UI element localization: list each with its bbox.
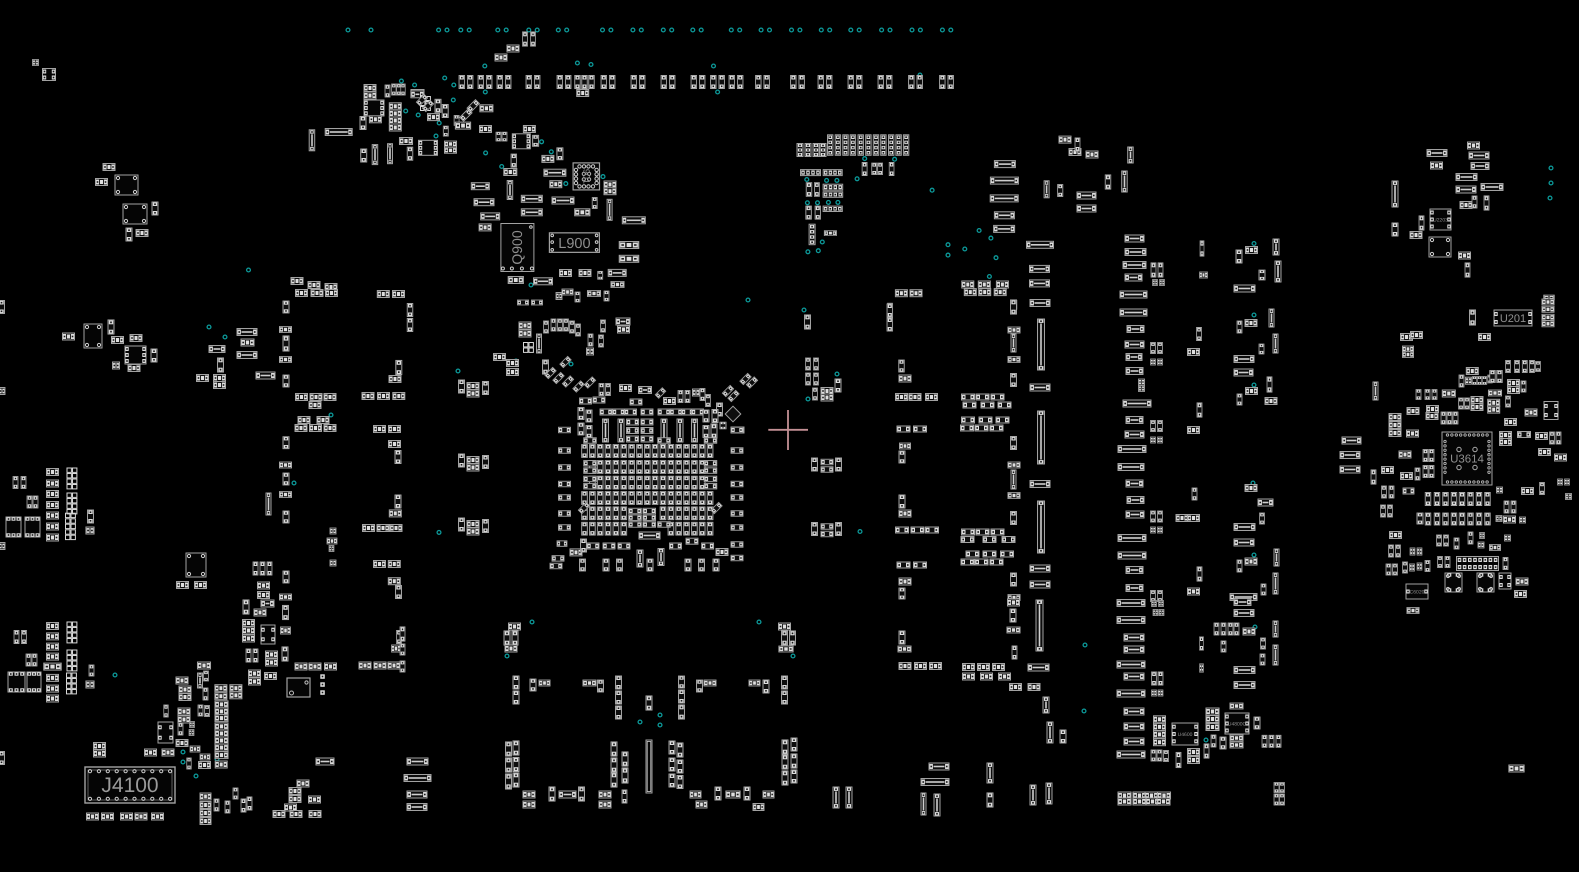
svg-text:U201: U201 [1500, 313, 1526, 325]
svg-text:L900: L900 [558, 236, 590, 252]
svg-text:U4800C: U4800C [1228, 721, 1247, 727]
svg-text:Q900: Q900 [509, 230, 525, 264]
svg-text:U4600: U4600 [1178, 732, 1193, 738]
svg-text:U3614: U3614 [1450, 454, 1484, 466]
svg-text:C6020: C6020 [1410, 589, 1425, 595]
svg-text:U2203: U2203 [1433, 217, 1448, 223]
svg-text:J4100: J4100 [101, 774, 158, 797]
svg-text:901: 901 [581, 169, 591, 184]
